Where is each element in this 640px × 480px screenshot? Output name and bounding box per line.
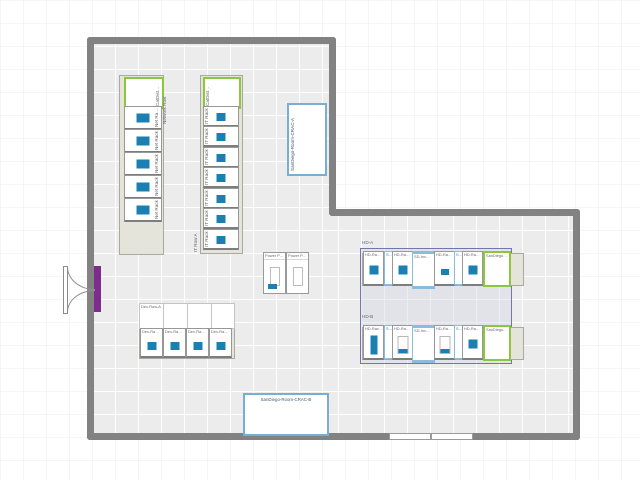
bottom-door-panel-left[interactable] xyxy=(389,433,431,440)
hd-a-rack-2[interactable]: HD-Ra… xyxy=(392,251,413,286)
hd-b-rack-3[interactable]: HD-Ra… xyxy=(434,325,455,360)
it-catdist-label: CatDist… xyxy=(206,80,211,106)
hd-a-pdu[interactable]: SanDiego… xyxy=(483,251,511,287)
room-layout-canvas: CatDist… Network Row Net Ra… Net Rack 2 … xyxy=(0,0,640,480)
hd-a-rack-1-label: HD-Ra… xyxy=(364,252,383,258)
rack-net-3[interactable]: Net Rack 3 xyxy=(124,152,162,176)
hd-b-rack-2[interactable]: HD-Ra… xyxy=(392,325,413,360)
rack-net-2-label: Net Rack 2 xyxy=(155,131,160,150)
rack-dev-1-label: Dev-Ra… xyxy=(141,329,162,335)
rack-dev-3-label: Dev-Ra… xyxy=(187,329,208,335)
panel-breaker-icon xyxy=(268,284,277,289)
power-panel-1[interactable]: Power P… xyxy=(263,252,286,294)
wall-right-upper xyxy=(329,37,336,216)
rack-net-1-label: Net Ra… xyxy=(155,108,160,127)
dev-row-label: Dev-Row-A xyxy=(140,304,163,310)
hd-a-pdu-label: SanDiego… xyxy=(485,253,509,259)
hd-b-rack-3-label: HD-Ra… xyxy=(435,326,454,332)
rack-dev-4-label: Dev-Ra… xyxy=(210,329,231,335)
wall-left xyxy=(87,37,94,440)
rack-dev-2-label: Dev-Ra… xyxy=(164,329,185,335)
device-icon xyxy=(137,182,150,191)
hd-row-a-label: HD-A xyxy=(362,241,373,246)
hd-b-inv-cabinet[interactable]: SD-Inv… xyxy=(412,325,435,363)
rack-net-4[interactable]: Net Rack 4 xyxy=(124,175,162,199)
device-icon xyxy=(137,136,150,145)
power-panel-2[interactable]: Power P… xyxy=(286,252,309,294)
rack-it-2-label: IT Rack 2 xyxy=(205,128,210,144)
wall-bottom xyxy=(87,433,580,440)
hd-b-rack-1[interactable]: HD-Rac… xyxy=(363,325,384,360)
device-icon xyxy=(217,215,226,223)
rack-it-6-label: IT Rack 6 xyxy=(205,210,210,226)
bottom-door-panel-right[interactable] xyxy=(431,433,473,440)
device-icon xyxy=(193,342,202,350)
crac-b-unit[interactable]: SanDiego-Room-CRAC-B xyxy=(243,393,329,436)
device-icon xyxy=(137,113,150,122)
rack-dev-3[interactable]: Dev-Ra… xyxy=(186,328,209,358)
device-icon xyxy=(441,269,449,275)
hd-a-rack-4-label: HD-Ra… xyxy=(463,252,482,258)
device-icon xyxy=(170,342,179,350)
hd-b-rack-2-label: HD-Ra… xyxy=(393,326,412,332)
crac-b-label: SanDiego-Room-CRAC-B xyxy=(245,395,327,402)
rack-net-4-label: Net Rack 4 xyxy=(155,177,160,196)
rack-it-1-label: IT Rack 1 xyxy=(205,108,210,124)
hd-b-sensor-1-label: S… xyxy=(385,326,392,332)
rack-dev-4[interactable]: Dev-Ra… xyxy=(209,328,232,358)
device-icon xyxy=(217,174,226,182)
rack-dev-1[interactable]: Dev-Ra… xyxy=(140,328,163,358)
dev-row-cell-3 xyxy=(187,303,212,329)
dev-row-cell-2 xyxy=(163,303,188,329)
rack-it-5-label: IT Rack 5 xyxy=(205,190,210,206)
dev-row-cell-4 xyxy=(211,303,235,329)
rack-net-5-label: Net Rack 5 xyxy=(155,200,160,219)
hd-a-inv-cabinet-label: SD-Inv… xyxy=(413,254,434,260)
door-leaf[interactable] xyxy=(63,266,68,314)
device-icon xyxy=(468,339,477,348)
hd-b-pdu-label: SanDiego… xyxy=(485,327,509,333)
rack-it-3[interactable]: IT Rack 3 xyxy=(203,147,239,168)
hd-a-sensor-1-label: S… xyxy=(385,252,392,258)
rack-net-1[interactable]: Net Ra… xyxy=(124,106,162,130)
dev-row-cell-1: Dev-Row-A xyxy=(139,303,164,329)
device-icon xyxy=(217,133,226,141)
hd-b-pdu[interactable]: SanDiego… xyxy=(483,325,511,361)
rack-it-5[interactable]: IT Rack 5 xyxy=(203,188,239,209)
hd-a-inv-cabinet[interactable]: SD-Inv… xyxy=(412,251,435,289)
rack-net-3-label: Net Rack 3 xyxy=(155,154,160,173)
device-icon xyxy=(147,342,156,350)
crac-a-label: SanDiego-Room-CRAC-A xyxy=(291,108,296,171)
device-icon xyxy=(370,335,377,354)
rack-net-2[interactable]: Net Rack 2 xyxy=(124,129,162,153)
device-icon xyxy=(137,205,150,214)
network-catdist-box[interactable]: CatDist… xyxy=(124,77,164,109)
device-icon xyxy=(398,265,407,274)
rack-it-3-label: IT Rack 3 xyxy=(205,149,210,165)
crac-a-unit[interactable]: SanDiego-Room-CRAC-A xyxy=(287,103,327,176)
rack-dev-2[interactable]: Dev-Ra… xyxy=(163,328,186,358)
power-panel-2-label: Power P… xyxy=(287,253,308,260)
rack-it-2[interactable]: IT Rack 2 xyxy=(203,126,239,147)
hd-b-rack-4[interactable]: HD-Ra… xyxy=(462,325,483,360)
device-icon xyxy=(439,336,450,354)
device-icon xyxy=(217,113,226,121)
hd-a-rack-2-label: HD-Ra… xyxy=(393,252,412,258)
panel-slot-icon xyxy=(293,267,303,286)
rack-it-4-label: IT Rack 4 xyxy=(205,169,210,185)
device-icon xyxy=(217,236,226,244)
network-catdist-label: CatDist… xyxy=(156,80,161,106)
rack-it-1[interactable]: IT Rack 1 xyxy=(203,106,239,127)
hd-a-rack-4[interactable]: HD-Ra… xyxy=(462,251,483,286)
rack-it-7-label: IT Rack 7 xyxy=(205,231,210,247)
power-panel-1-label: Power P… xyxy=(264,253,285,260)
hd-row-b-label: HD-B xyxy=(362,315,373,320)
wall-step xyxy=(329,209,580,216)
device-icon xyxy=(397,336,408,354)
door-swing-arc-bottom xyxy=(67,290,95,312)
hd-a-rack-1[interactable]: HD-Ra… xyxy=(363,251,384,286)
hd-b-rack-4-label: HD-Ra… xyxy=(463,326,482,332)
device-icon xyxy=(137,159,150,168)
hd-b-rack-1-label: HD-Rac… xyxy=(364,326,383,332)
hd-b-sensor-2-label: S… xyxy=(455,326,462,332)
door-swing-arc-top xyxy=(67,267,95,290)
device-icon xyxy=(217,195,226,203)
it-row-label: IT Row A xyxy=(194,222,199,252)
device-icon xyxy=(369,265,378,274)
network-row-label: Network Row xyxy=(163,78,168,124)
rack-net-5[interactable]: Net Rack 5 xyxy=(124,198,162,222)
device-icon xyxy=(468,265,477,274)
device-icon xyxy=(217,154,226,162)
door-threshold[interactable] xyxy=(94,266,101,312)
device-icon xyxy=(216,342,225,350)
wall-right-lower xyxy=(573,209,580,440)
it-catdist-box[interactable]: CatDist… xyxy=(203,77,241,109)
rack-it-7[interactable]: IT Rack 7 xyxy=(203,229,239,250)
rack-it-4[interactable]: IT Rack 4 xyxy=(203,167,239,188)
rack-it-6[interactable]: IT Rack 6 xyxy=(203,208,239,229)
hd-a-sensor-2-label: S… xyxy=(455,252,462,258)
hd-a-rack-3-label: HD-Ra… xyxy=(435,252,454,258)
hd-b-inv-cabinet-label: SD-Inv… xyxy=(413,328,434,334)
wall-top xyxy=(87,37,336,44)
hd-a-rack-3[interactable]: HD-Ra… xyxy=(434,251,455,286)
